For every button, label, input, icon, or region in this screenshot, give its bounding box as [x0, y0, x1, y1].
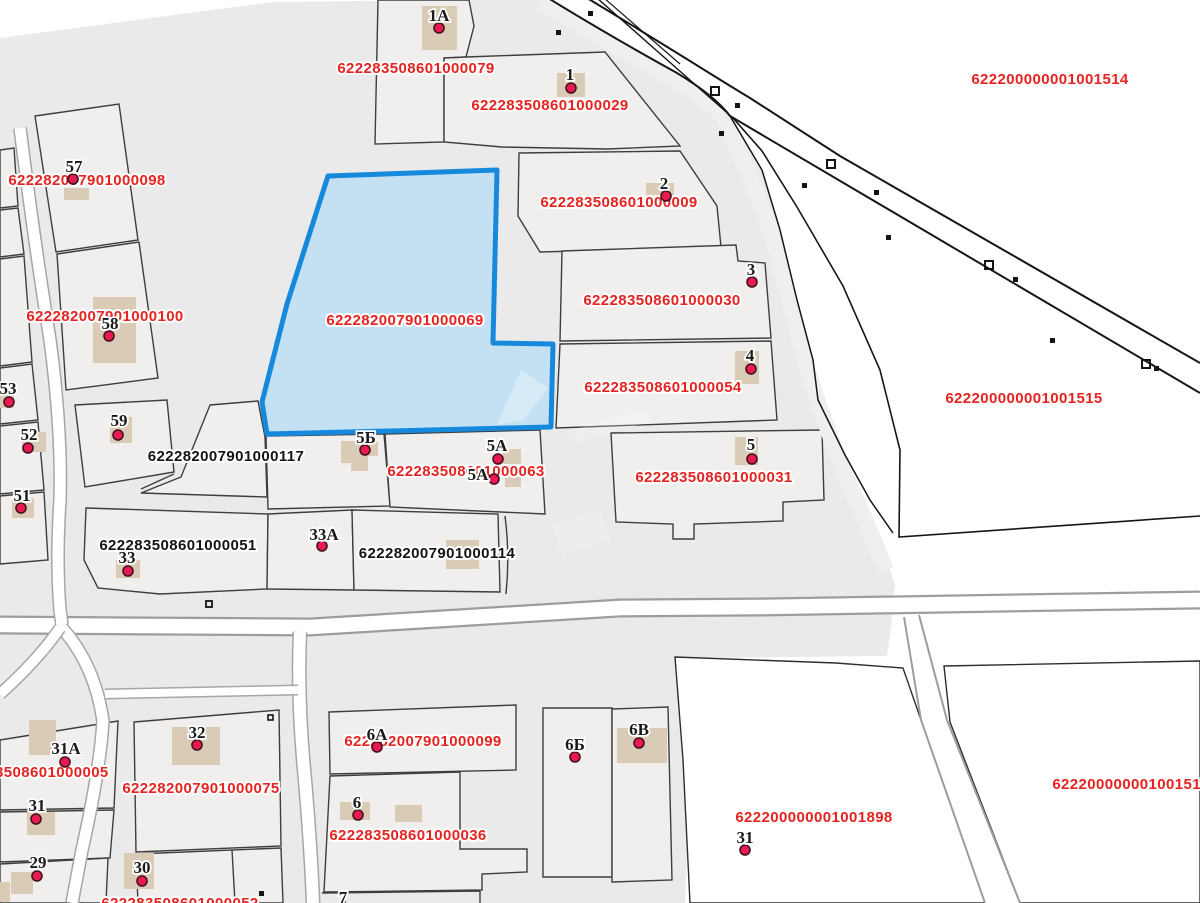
- svg-text:622283508601000009: 622283508601000009: [540, 194, 697, 211]
- svg-text:622200000001001516: 622200000001001516: [1052, 776, 1200, 793]
- svg-text:32: 32: [189, 723, 206, 742]
- svg-text:622200000001001514: 622200000001001514: [971, 71, 1129, 88]
- svg-text:52: 52: [21, 425, 38, 444]
- svg-text:622282007901000117: 622282007901000117: [148, 448, 305, 465]
- svg-text:6В: 6В: [629, 720, 649, 739]
- svg-text:622200000001001898: 622200000001001898: [735, 809, 892, 826]
- svg-text:5А: 5А: [468, 465, 490, 484]
- svg-text:622282007901000069: 622282007901000069: [326, 312, 483, 329]
- svg-text:6: 6: [353, 793, 362, 812]
- svg-text:53: 53: [0, 379, 17, 398]
- svg-text:5Б: 5Б: [356, 428, 376, 447]
- svg-text:29: 29: [30, 853, 47, 872]
- svg-text:622283508601000005: 622283508601000005: [0, 764, 109, 781]
- svg-text:58: 58: [102, 314, 119, 333]
- svg-text:622283508601000052: 622283508601000052: [101, 895, 258, 903]
- svg-text:622282007901000075: 622282007901000075: [122, 780, 279, 797]
- svg-text:622283508601000029: 622283508601000029: [471, 97, 628, 114]
- svg-text:57: 57: [66, 157, 84, 176]
- svg-text:1: 1: [566, 65, 575, 84]
- svg-text:5А: 5А: [487, 436, 509, 455]
- svg-text:31: 31: [29, 796, 46, 815]
- svg-text:6Б: 6Б: [565, 735, 585, 754]
- svg-text:30: 30: [134, 858, 151, 877]
- svg-text:622283508601000079: 622283508601000079: [337, 60, 494, 77]
- svg-text:5: 5: [747, 435, 756, 454]
- svg-text:31А: 31А: [51, 739, 81, 758]
- svg-text:622200000001001515: 622200000001001515: [945, 390, 1102, 407]
- svg-text:31: 31: [737, 828, 754, 847]
- svg-text:7: 7: [339, 888, 348, 903]
- svg-text:622283508601000031: 622283508601000031: [635, 469, 792, 486]
- svg-text:33А: 33А: [309, 525, 339, 544]
- svg-text:1А: 1А: [429, 6, 451, 25]
- svg-text:622283508601000063: 622283508601000063: [387, 463, 544, 480]
- svg-text:622283508601000036: 622283508601000036: [329, 827, 486, 844]
- svg-text:59: 59: [111, 411, 128, 430]
- svg-text:622282007901000114: 622282007901000114: [359, 545, 516, 562]
- svg-text:6А: 6А: [367, 725, 389, 744]
- svg-text:33: 33: [119, 548, 136, 567]
- svg-text:622283508601000054: 622283508601000054: [584, 379, 742, 396]
- svg-text:51: 51: [14, 486, 31, 505]
- svg-text:622282007901000098: 622282007901000098: [8, 172, 165, 189]
- svg-text:3: 3: [747, 260, 756, 279]
- svg-text:4: 4: [746, 346, 755, 365]
- svg-text:622283508601000030: 622283508601000030: [583, 292, 740, 309]
- svg-text:2: 2: [660, 174, 669, 193]
